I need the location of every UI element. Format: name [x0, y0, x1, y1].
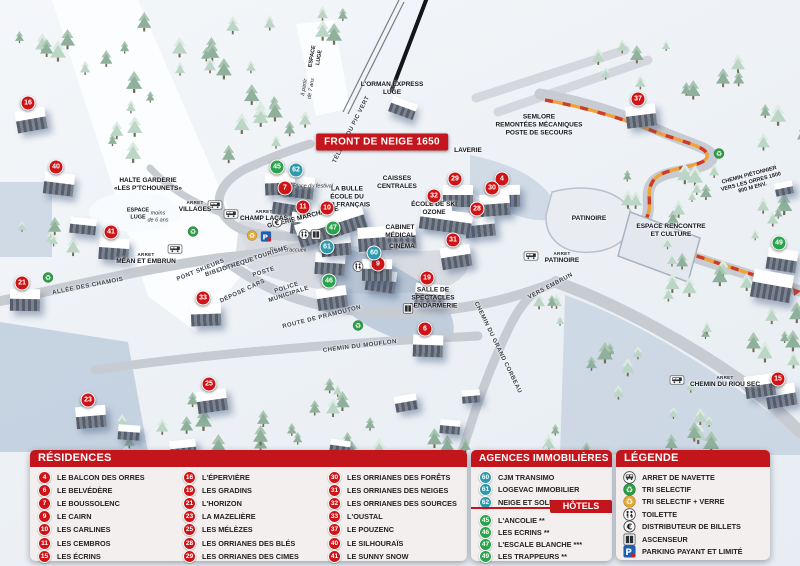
bus-stop-icon-patinoire [524, 248, 539, 266]
map-marker-16: 16 [21, 96, 36, 111]
item-badge-21: 21 [183, 497, 196, 510]
building [625, 103, 657, 128]
residence-name: L'HORIZON [202, 499, 242, 508]
building [75, 405, 107, 430]
recycle-green-icon: ♻ [623, 483, 636, 496]
residence-item-40: 40LE SILHOURAÏS [328, 537, 403, 549]
building [10, 289, 40, 312]
map-marker-32: 32 [427, 189, 442, 204]
residences-panel: RÉSIDENCES 4LE BALCON DES ORRES6LE BELVÉ… [30, 450, 467, 561]
front-de-neige-banner: FRONT DE NEIGE 1650 [316, 134, 448, 151]
hotel-item-46: 46LES ECRINS ** [479, 526, 550, 538]
legende-header: LÉGENDE [616, 450, 770, 467]
residence-name: LES ÉCRINS [57, 552, 101, 561]
map-marker-28: 28 [470, 202, 485, 217]
legende-label: ARRET DE NAVETTE [642, 473, 715, 482]
residence-item-6: 6LE BELVÉDÈRE [38, 484, 112, 496]
building [118, 424, 141, 440]
bus-stop-label-patinoire: ARRETPATINOIRE [545, 252, 579, 264]
residence-item-4: 4LE BALCON DES ORRES [38, 471, 145, 483]
legende-item-3: TOILETTE [623, 508, 677, 520]
hotels-header: HÔTELS [550, 500, 612, 513]
hotel-name: L'ANCOLIE ** [498, 516, 545, 525]
map-label-laverie: LAVERIE [454, 147, 482, 155]
legende-item-4: €DISTRIBUTEUR DE BILLETS [623, 521, 741, 533]
residence-item-37: 37LE POUZENC [328, 524, 394, 536]
bus-stop-label-champ-lacas: ARRETCHAMP LACAS [240, 210, 288, 222]
map-label-orman-express: L'ORMAN EXPRESSLUGE [361, 81, 424, 97]
residence-item-15: 15LES ÉCRINS [38, 550, 101, 562]
item-badge-33: 33 [328, 510, 341, 523]
recycle-yellow-icon: ♻ [623, 495, 636, 508]
map-recycle-green-icon: ♻ [714, 146, 725, 164]
residence-name: LE CAIRN [57, 512, 91, 521]
map-marker-25: 25 [202, 377, 217, 392]
svg-text:♻: ♻ [626, 484, 633, 494]
map-label-ecole-ski-ozone: ÉCOLE DE SKIOZONE [411, 201, 457, 217]
map-marker-37: 37 [631, 92, 646, 107]
map-marker-60: 60 [367, 246, 382, 261]
residence-item-28: 28LES ORRIANES DES BLÉS [183, 537, 295, 549]
map-marker-45: 45 [270, 160, 285, 175]
gondola-cable [391, 0, 428, 92]
item-badge-25: 25 [183, 523, 196, 536]
map-wc-icon [353, 259, 364, 277]
legende-label: TRI SELECTIF + VERRE [642, 497, 725, 506]
bus-stop-label-chemin-du-riou-sec: ARRETCHEMIN DU RIOU SEC [690, 376, 760, 388]
item-badge-49: 49 [479, 550, 492, 563]
building [461, 389, 480, 404]
residence-item-9: 9LE CAIRN [38, 511, 91, 523]
item-badge-32: 32 [328, 497, 341, 510]
item-badge-28: 28 [183, 537, 196, 550]
residence-item-31: 31LES ORRIANES DES NEIGES [328, 484, 448, 496]
bus-icon [623, 471, 636, 484]
map-label-halte-garderie: HALTE GARDERIE«LES P'TCHOUNETS» [114, 177, 182, 193]
map-recycle-yellow-icon: ♻ [247, 228, 258, 246]
map-marker-29: 29 [448, 172, 463, 187]
item-badge-6: 6 [38, 484, 51, 497]
building [479, 193, 510, 217]
map-marker-11: 11 [296, 200, 311, 215]
residence-name: L'OUSTAL [347, 512, 383, 521]
map-wc-icon [299, 227, 310, 245]
map-marker-31: 31 [446, 233, 461, 248]
map-recycle-green-icon: ♻ [188, 224, 199, 242]
item-badge-7: 7 [38, 497, 51, 510]
residence-name: LES ORRIANES DES FORÊTS [347, 473, 450, 482]
map-label-moins-de-6-ans: moinsde 6 ans [147, 210, 168, 223]
hotel-item-45: 45L'ANCOLIE ** [479, 514, 545, 526]
svg-text:♻: ♻ [355, 321, 361, 330]
svg-text:♻: ♻ [45, 273, 51, 282]
building [69, 217, 97, 236]
map-label-place-du-festival: Place du festival [293, 184, 333, 191]
item-badge-60: 60 [479, 471, 492, 484]
map-marker-19: 19 [420, 271, 435, 286]
map-recycle-green-icon: ♻ [353, 318, 364, 336]
hotel-name: L'ESCALE BLANCHE *** [498, 540, 582, 549]
wc-icon [623, 508, 636, 521]
map-label-patinoire: PATINOIRE [572, 215, 606, 223]
legende-item-5: ASCENSEUR [623, 533, 688, 545]
bus-stop-label-m-an-et-embrun: ARRETMÉAN ET EMBRUN [116, 253, 176, 265]
map-recycle-green-icon: ♻ [43, 270, 54, 288]
agency-item-61: 61LOGEVAC IMMOBILIER [479, 484, 579, 496]
map-marker-40: 40 [49, 160, 64, 175]
map-label-cabinet-medical: CABINETMÉDICAL [385, 224, 415, 240]
legende-item-0: ARRET DE NAVETTE [623, 471, 715, 483]
svg-text:♻: ♻ [249, 231, 255, 240]
item-badge-46: 46 [479, 526, 492, 539]
map-elevator-icon [403, 301, 414, 319]
map-label-espace-luge-6ans: ESPACELUGE [127, 207, 149, 220]
agency-item-60: 60CJM TRANSIMO [479, 471, 554, 483]
item-badge-61: 61 [479, 483, 492, 496]
map-label-caisses-centrales: CAISSESCENTRALES [377, 175, 417, 191]
map-marker-6: 6 [418, 322, 433, 337]
agency-name: CJM TRANSIMO [498, 473, 554, 482]
residence-item-25: 25LES MÉLÈZES [183, 524, 253, 536]
residence-name: LES CARLINES [57, 525, 111, 534]
residence-name: LE SUNNY SNOW [347, 552, 409, 561]
svg-text:€: € [626, 522, 632, 531]
agences-header: AGENCES IMMOBILIÈRES [471, 450, 612, 467]
residence-name: LE POUZENC [347, 525, 394, 534]
residence-name: LES ORRIANES DES BLÉS [202, 539, 295, 548]
item-badge-11: 11 [38, 537, 51, 550]
hotel-name: LES TRAPPEURS ** [498, 552, 567, 561]
residence-name: LE BALCON DES ORRES [57, 473, 145, 482]
svg-text:♻: ♻ [190, 227, 196, 236]
building [439, 419, 460, 435]
residence-item-21: 21L'HORIZON [183, 497, 242, 509]
building [191, 303, 222, 326]
resort-map-page: ESPACELUGEà partirde 7 ansTÉLÉSKI DU PIC… [0, 0, 800, 566]
bus-stop-label-villages: ARRETVILLAGES [179, 201, 212, 213]
map-marker-21: 21 [15, 276, 30, 291]
item-badge-10: 10 [38, 523, 51, 536]
bus-stop-icon-chemin-du-riou-sec [670, 372, 685, 390]
map-label-espace-rencontre-et-culture: ESPACE RENCONTREET CULTURE [636, 223, 705, 239]
legende-panel: LÉGENDE ARRET DE NAVETTE♻TRI SELECTIF♻TR… [616, 450, 770, 560]
building [316, 285, 349, 311]
residence-name: LES MÉLÈZES [202, 525, 253, 534]
item-badge-16: 16 [183, 471, 196, 484]
map-label-salle-de-spectacles: SALLE DESPECTACLESGENDARMERIE [409, 286, 458, 309]
residence-name: LE SILHOURAÏS [347, 539, 403, 548]
residence-name: LES ORRIANES DES CIMES [202, 552, 299, 561]
residence-name: LES CEMBROS [57, 539, 111, 548]
building [196, 388, 229, 414]
residence-item-19: 19LES GRADINS [183, 484, 252, 496]
item-badge-47: 47 [479, 538, 492, 551]
item-badge-41: 41 [328, 550, 341, 563]
map-marker-30: 30 [485, 181, 500, 196]
map-label-semlore: SEMLOREREMONTÉES MÉCANIQUESPOSTE DE SECO… [495, 113, 582, 136]
map-marker-33: 33 [196, 291, 211, 306]
hotel-item-49: 49LES TRAPPEURS ** [479, 551, 567, 563]
item-badge-23: 23 [183, 510, 196, 523]
item-badge-9: 9 [38, 510, 51, 523]
svg-text:♻: ♻ [626, 497, 633, 507]
residence-item-16: 16L'ÉPERVIÈRE [183, 471, 250, 483]
agency-name: LOGEVAC IMMOBILIER [498, 485, 579, 494]
residence-item-29: 29LES ORRIANES DES CIMES [183, 550, 299, 562]
residence-item-23: 23LA MAZELIÈRE [183, 511, 256, 523]
map-marker-49: 49 [772, 236, 787, 251]
item-badge-29: 29 [183, 550, 196, 563]
building [43, 171, 75, 196]
legende-item-2: ♻TRI SELECTIF + VERRE [623, 496, 725, 508]
agences-hotels-panel: AGENCES IMMOBILIÈRES 60CJM TRANSIMO61LOG… [471, 450, 612, 561]
parking-icon: P [623, 545, 636, 558]
map-marker-46: 46 [322, 274, 337, 289]
residence-name: LES GRADINS [202, 486, 252, 495]
item-badge-30: 30 [328, 471, 341, 484]
item-badge-45: 45 [479, 514, 492, 527]
map-marker-7: 7 [278, 181, 293, 196]
bus-stop-icon-champ-lacas [224, 206, 239, 224]
residence-name: LE BELVÉDÈRE [57, 486, 112, 495]
residence-name: LA MAZELIÈRE [202, 512, 256, 521]
residence-item-30: 30LES ORRIANES DES FORÊTS [328, 471, 450, 483]
map-marker-23: 23 [81, 393, 96, 408]
map-marker-47: 47 [326, 221, 341, 236]
item-badge-37: 37 [328, 523, 341, 536]
item-badge-19: 19 [183, 484, 196, 497]
residence-name: L'ÉPERVIÈRE [202, 473, 250, 482]
elevator-icon [623, 533, 636, 546]
svg-text:♻: ♻ [716, 149, 722, 158]
residence-item-10: 10LES CARLINES [38, 524, 111, 536]
map-marker-41: 41 [104, 225, 119, 240]
euro-icon: € [623, 520, 636, 533]
legende-label: PARKING PAYANT ET LIMITÉ [642, 547, 743, 556]
legende-label: TRI SELECTIF [642, 485, 691, 494]
residence-name: LES ORRIANES DES SOURCES [347, 499, 457, 508]
map-marker-62: 62 [289, 163, 304, 178]
building [765, 247, 798, 273]
residence-name: LES ORRIANES DES NEIGES [347, 486, 448, 495]
item-badge-15: 15 [38, 550, 51, 563]
residence-item-33: 33L'OUSTAL [328, 511, 383, 523]
residence-item-32: 32LES ORRIANES DES SOURCES [328, 497, 457, 509]
legende-label: TOILETTE [642, 510, 677, 519]
hotel-item-47: 47L'ESCALE BLANCHE *** [479, 539, 582, 551]
residence-item-7: 7LE BOUSSOLENC [38, 497, 120, 509]
map-marker-10: 10 [320, 201, 335, 216]
item-badge-31: 31 [328, 484, 341, 497]
building [413, 334, 444, 357]
residence-item-11: 11LES CEMBROS [38, 537, 111, 549]
map-marker-15: 15 [771, 372, 786, 387]
residence-item-41: 41LE SUNNY SNOW [328, 550, 409, 562]
residence-name: LE BOUSSOLENC [57, 499, 120, 508]
legende-label: ASCENSEUR [642, 535, 688, 544]
building [439, 244, 472, 270]
item-badge-4: 4 [38, 471, 51, 484]
map-marker-61: 61 [320, 240, 335, 255]
legende-item-6: PPARKING PAYANT ET LIMITÉ [623, 545, 743, 557]
item-badge-40: 40 [328, 537, 341, 550]
map-label-cinema: CINÉMA [389, 243, 415, 251]
map-parking-icon: P [261, 229, 272, 247]
legende-label: DISTRIBUTEUR DE BILLETS [642, 522, 741, 531]
residences-header: RÉSIDENCES [30, 450, 467, 467]
legende-item-1: ♻TRI SELECTIF [623, 483, 691, 495]
hotel-name: LES ECRINS ** [498, 528, 550, 537]
